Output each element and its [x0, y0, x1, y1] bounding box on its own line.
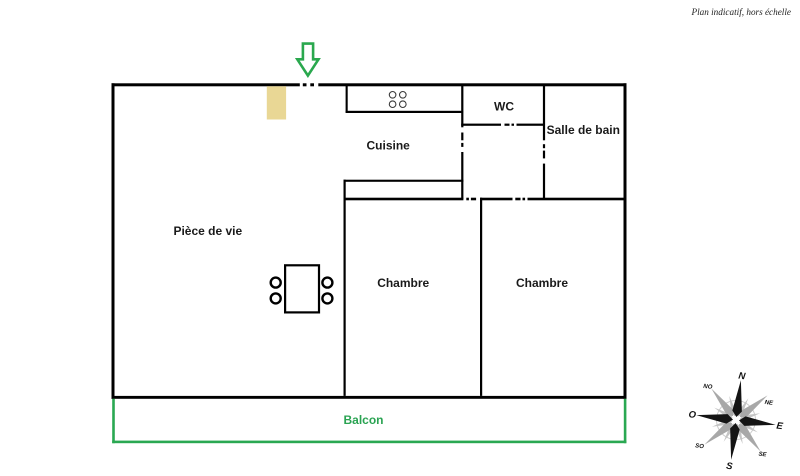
svg-text:NO: NO — [703, 384, 713, 391]
svg-text:WC: WC — [494, 99, 514, 113]
svg-text:SO: SO — [695, 443, 705, 450]
svg-text:Chambre: Chambre — [516, 276, 568, 290]
svg-text:Salle de bain: Salle de bain — [547, 123, 620, 137]
svg-text:Balcon: Balcon — [343, 413, 383, 427]
svg-text:Cuisine: Cuisine — [367, 138, 411, 152]
svg-text:Pièce de vie: Pièce de vie — [173, 224, 242, 238]
svg-text:Plan indicatif, hors échelle: Plan indicatif, hors échelle — [690, 7, 791, 17]
svg-text:Chambre: Chambre — [377, 276, 429, 290]
